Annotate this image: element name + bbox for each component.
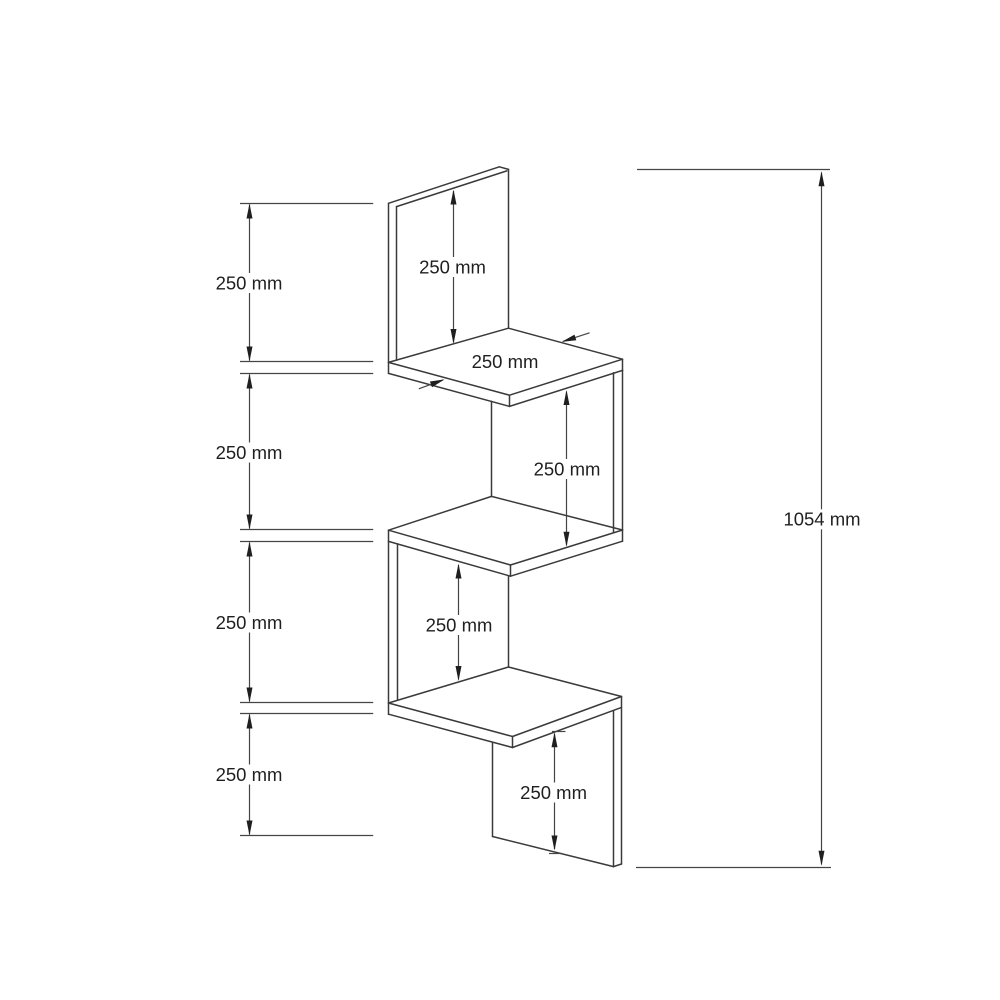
svg-text:250 mm: 250 mm [216,612,283,633]
svg-text:250 mm: 250 mm [216,764,283,785]
svg-text:250 mm: 250 mm [426,614,493,635]
svg-text:250 mm: 250 mm [520,782,587,803]
svg-text:250 mm: 250 mm [216,442,283,463]
svg-text:250 mm: 250 mm [216,272,283,293]
svg-text:250 mm: 250 mm [472,351,539,372]
svg-text:250 mm: 250 mm [534,458,601,479]
svg-text:250 mm: 250 mm [419,256,486,277]
svg-text:1054 mm: 1054 mm [783,509,860,530]
